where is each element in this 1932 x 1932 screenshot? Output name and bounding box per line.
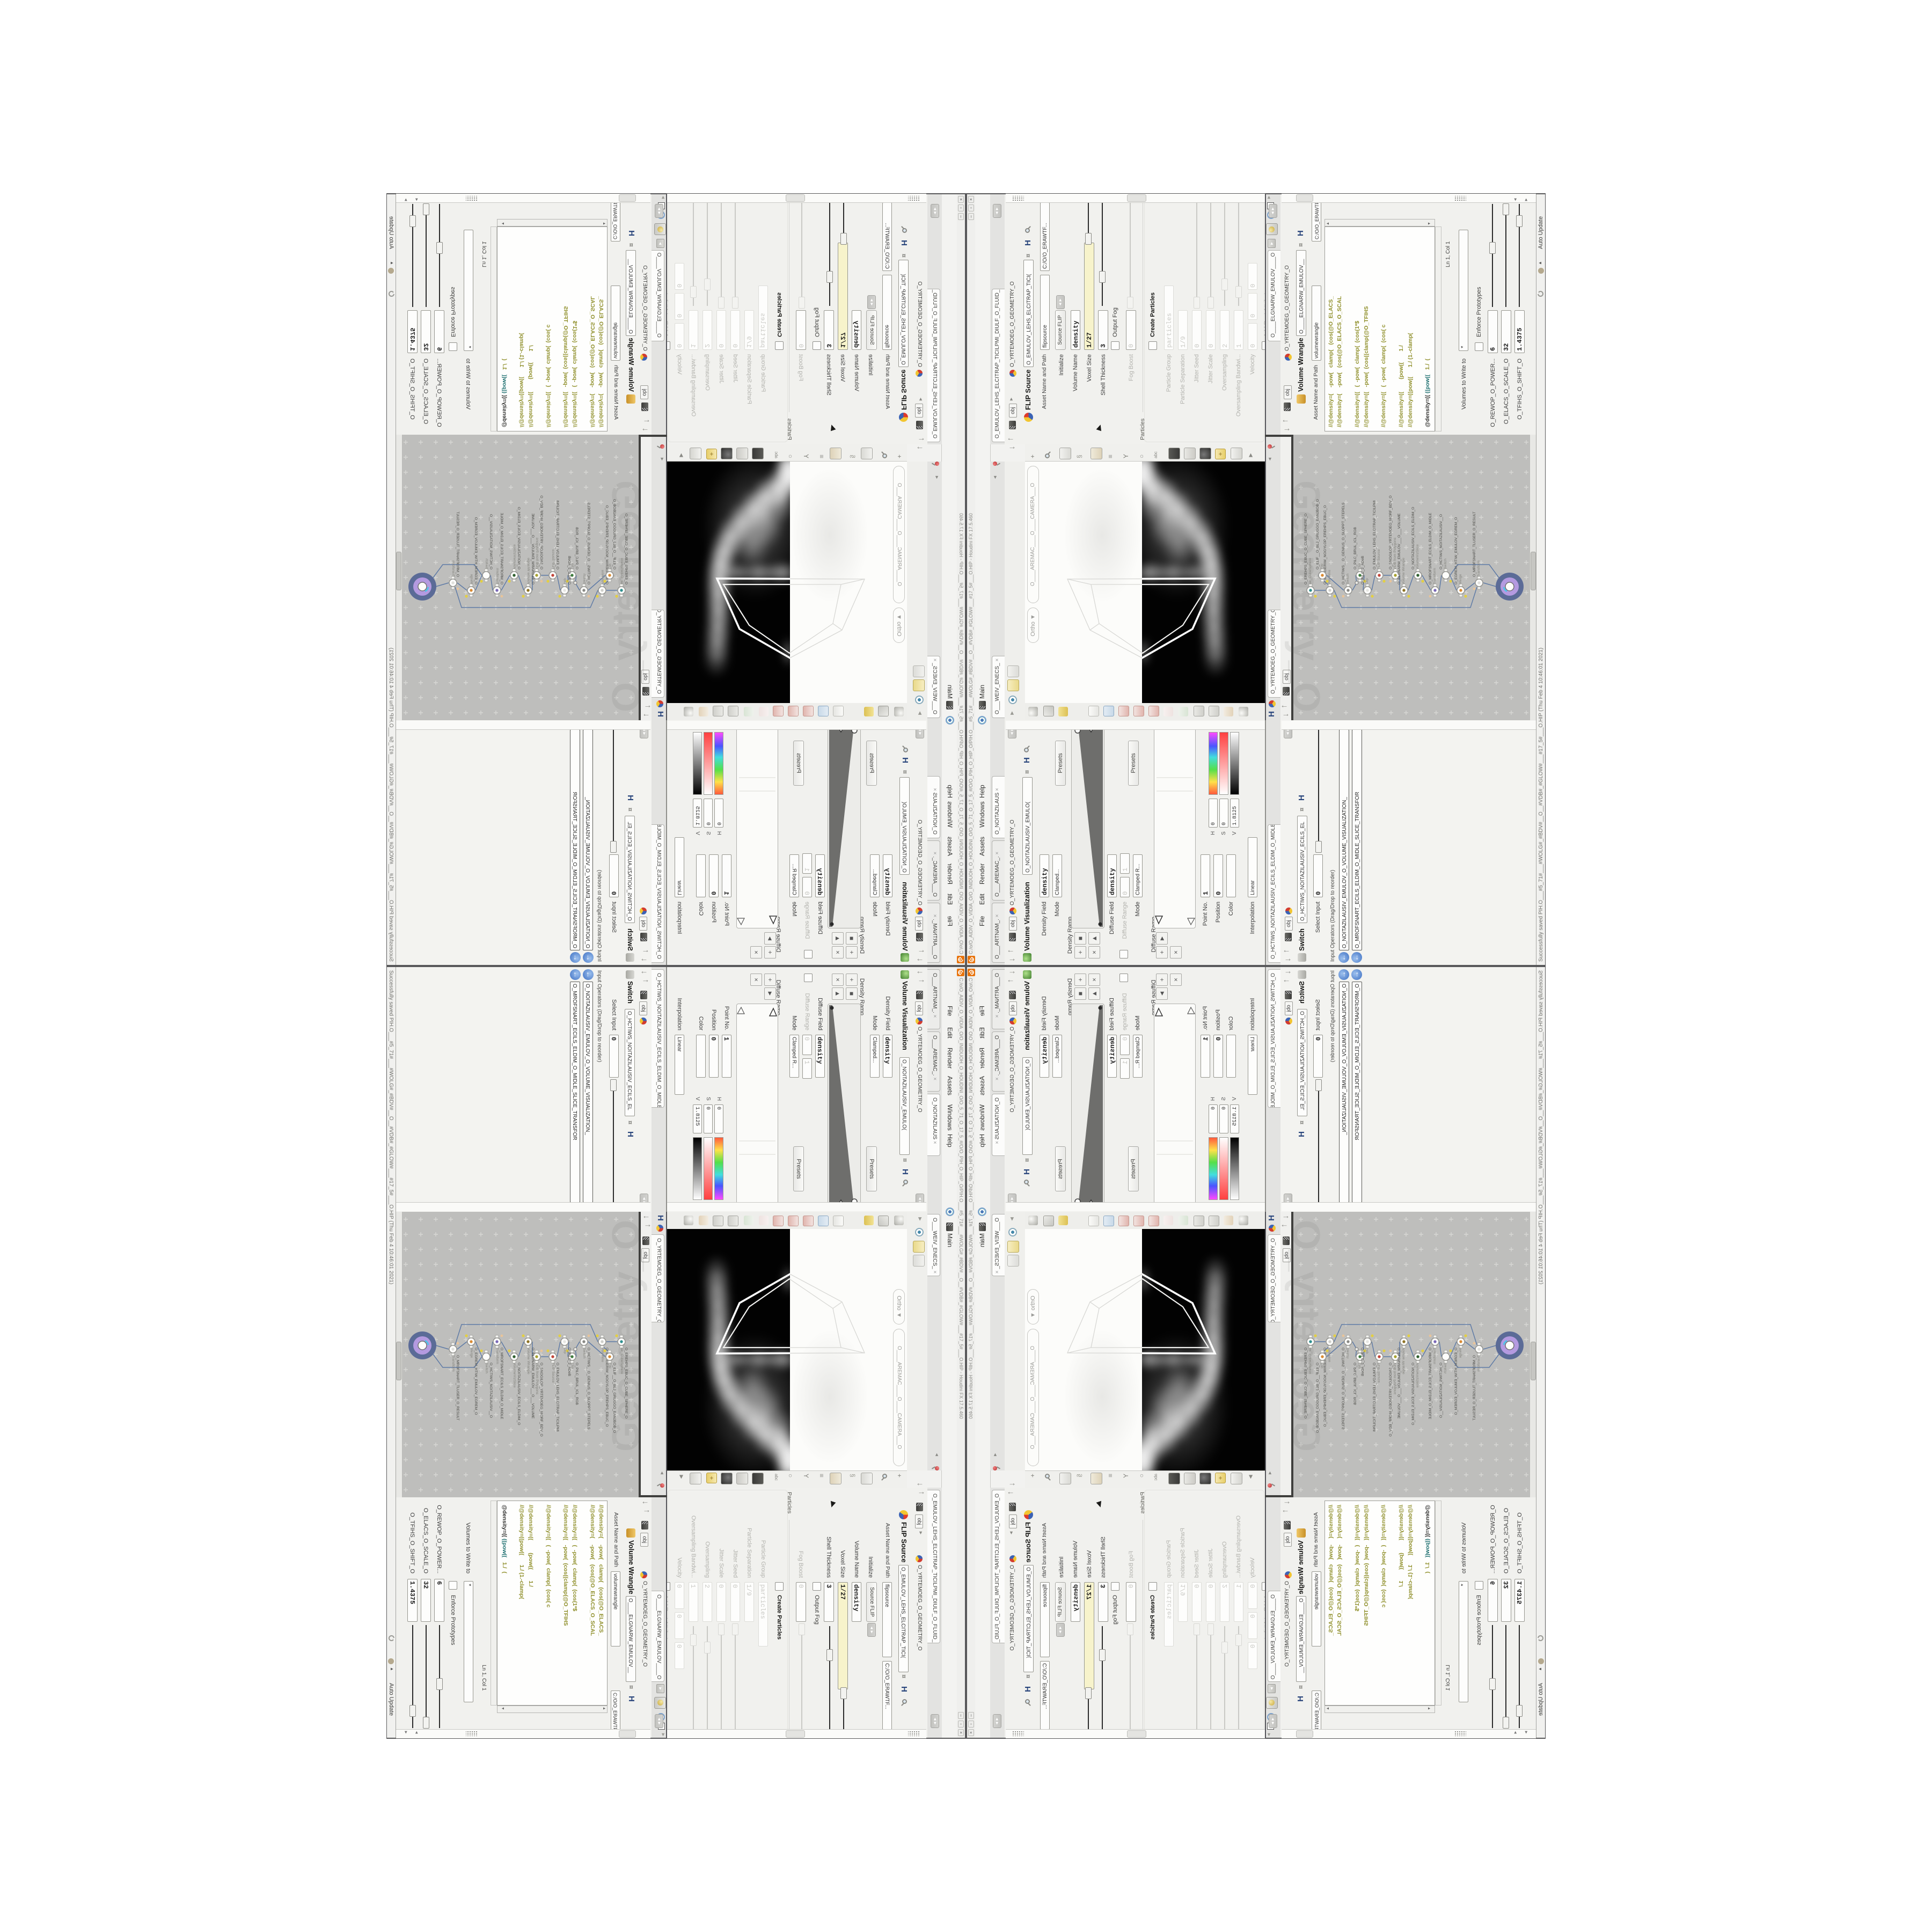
svg-text:O_NOITAZILAUSIV_ECILS_ELDIM_O: O_NOITAZILAUSIV_ECILS_ELDIM_O	[517, 1363, 521, 1425]
svg-text:ae_CubeSphere: ae_CubeSphere	[620, 1348, 624, 1374]
svg-text:VolumeVizSlice: VolumeVizSlice	[513, 1363, 516, 1388]
svg-text:O_HCTIWS_NOITAZILAUSIV__O: O_HCTIWS_NOITAZILAUSIV__O	[489, 1363, 493, 1418]
svg-text:O_MROFSNART_ECILS_ELDIM_O_MIDL: O_MROFSNART_ECILS_ELDIM_O_MIDLE	[500, 1348, 503, 1419]
svg-text:Switch: Switch	[582, 1348, 586, 1358]
svg-text:VDB from Polygons: VDB from Polygons	[535, 1363, 539, 1395]
svg-text:Transform: Transform	[451, 1355, 455, 1372]
svg-text:O_ELGNARW_EMULOV___O___VOLUME: O_ELGNARW_EMULOV___O___VOLUME	[531, 1348, 535, 1419]
svg-text:Clip: Clip	[563, 1348, 567, 1354]
svg-text:O_EREHPS_EBUC_O_CUBE_SPHERE_O: O_EREHPS_EBUC_O_CUBE_SPHERE_O	[624, 1348, 628, 1418]
svg-text:Transform: Transform	[495, 1348, 499, 1364]
svg-text:PolyWire: PolyWire	[601, 1348, 604, 1362]
svg-text:FLIP Source: FLIP Source	[551, 1363, 555, 1383]
svg-text:O_HCTIWS__O_GENIUS_O_SLOPPT_ST: O_HCTIWS__O_GENIUS_O_SLOPPT_STEPELS	[587, 1348, 590, 1430]
svg-text:O_MROFSNART_TLUSER_O_RESULT: O_MROFSNART_TLUSER_O_RESULT	[456, 1355, 459, 1421]
svg-text:O_SNOGILOP_YRTEMOEG_MORF_BDV_O: O_SNOGILOP_YRTEMOEG_MORF_BDV_O	[539, 1363, 543, 1437]
svg-text:Volume Wrangle: Volume Wrangle	[526, 1348, 530, 1374]
svg-text:File: File	[608, 1363, 612, 1368]
svg-text:O_EMULOV_LEHS_ELCITRAP_TICILPM: O_EMULOV_LEHS_ELCITRAP_TICILPMI	[555, 1363, 559, 1432]
svg-text:Switch: Switch	[485, 1363, 488, 1373]
svg-text:Merge: Merge	[470, 1348, 473, 1358]
svg-text:O_EGREM_HTIW_EMULOV_EGREM_O: O_EGREM_HTIW_EMULOV_EGREM_O	[474, 1348, 478, 1415]
svg-text:O_PILC_2_ADeB: O_PILC_2_ADeB	[567, 1348, 571, 1377]
svg-text:O_PILC_BRUL_ICL_RGB: O_PILC_BRUL_ICL_RGB	[575, 1363, 579, 1405]
